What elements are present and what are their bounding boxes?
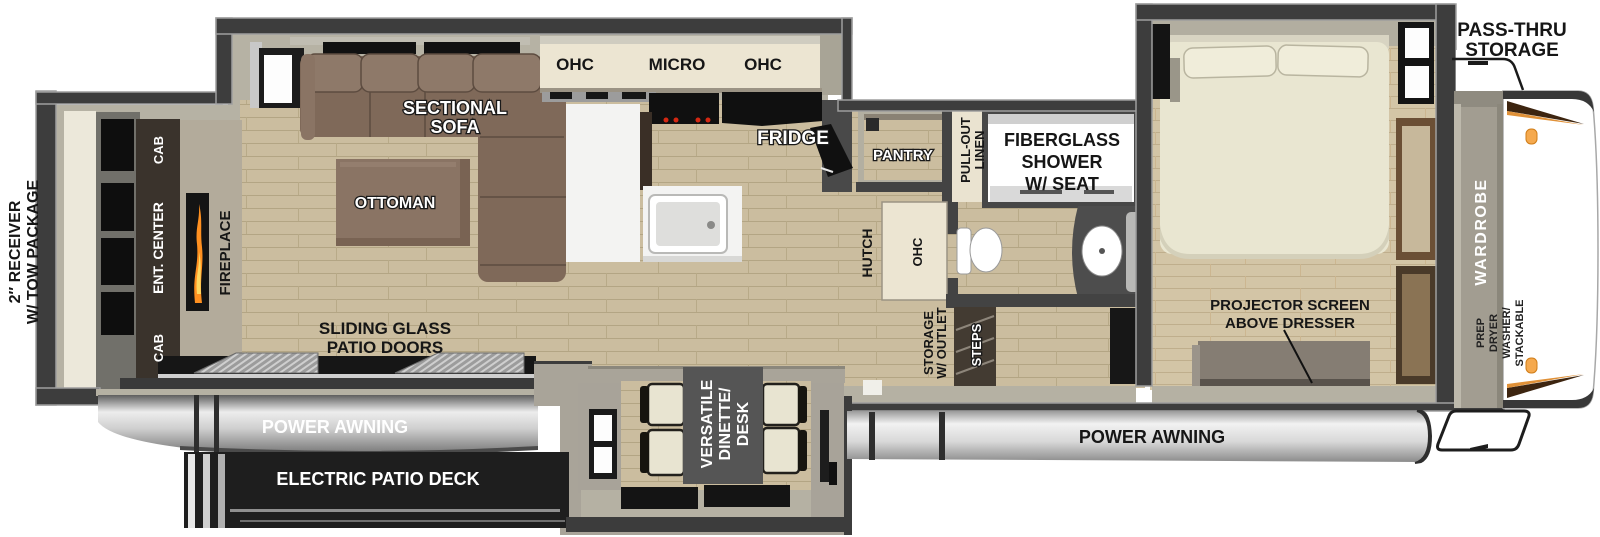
svg-text:FIREPLACE: FIREPLACE <box>217 210 234 295</box>
svg-text:OHC: OHC <box>744 55 782 74</box>
svg-text:OTTOMAN: OTTOMAN <box>355 195 436 212</box>
svg-text:ELECTRIC PATIO DECK: ELECTRIC PATIO DECK <box>276 469 479 489</box>
svg-text:STEPS: STEPS <box>969 323 984 366</box>
svg-text:PULL-OUT: PULL-OUT <box>958 117 973 183</box>
svg-text:PANTRY: PANTRY <box>873 147 933 164</box>
svg-text:W/ OUTLET: W/ OUTLET <box>934 307 949 379</box>
svg-text:STORAGE: STORAGE <box>1465 40 1559 61</box>
svg-text:OHC: OHC <box>556 55 594 74</box>
svg-text:WASHER/: WASHER/ <box>1501 307 1513 358</box>
svg-text:HUTCH: HUTCH <box>859 229 875 278</box>
svg-text:OHC: OHC <box>910 237 925 267</box>
svg-text:SOFA: SOFA <box>430 117 479 137</box>
svg-text:DINETTE/: DINETTE/ <box>717 387 734 460</box>
svg-text:WARDROBE: WARDROBE <box>1473 178 1490 285</box>
svg-text:FIBERGLASS: FIBERGLASS <box>1004 130 1120 150</box>
svg-text:PREP: PREP <box>1475 318 1487 348</box>
svg-text:2″ RECEIVER: 2″ RECEIVER <box>7 200 24 303</box>
svg-text:ENT. CENTER: ENT. CENTER <box>150 202 166 294</box>
svg-text:PROJECTOR SCREEN: PROJECTOR SCREEN <box>1210 297 1370 314</box>
svg-text:VERSATILE: VERSATILE <box>699 379 716 468</box>
svg-text:DESK: DESK <box>735 401 752 446</box>
svg-text:CAB: CAB <box>151 136 166 164</box>
svg-text:POWER AWNING: POWER AWNING <box>262 417 408 437</box>
svg-text:W/ SEAT: W/ SEAT <box>1025 174 1099 194</box>
svg-text:SECTIONAL: SECTIONAL <box>403 98 507 118</box>
svg-text:POWER AWNING: POWER AWNING <box>1079 427 1225 447</box>
svg-text:PATIO DOORS: PATIO DOORS <box>327 338 444 357</box>
svg-text:SLIDING GLASS: SLIDING GLASS <box>319 319 451 338</box>
svg-text:DRYER: DRYER <box>1488 314 1500 352</box>
svg-text:SHOWER: SHOWER <box>1022 152 1103 172</box>
svg-text:MICRO: MICRO <box>649 55 706 74</box>
svg-text:CAB: CAB <box>151 334 166 362</box>
svg-text:W/ TOW PACKAGE: W/ TOW PACKAGE <box>25 180 42 325</box>
svg-text:STACKABLE: STACKABLE <box>1514 299 1526 366</box>
svg-text:PASS-THRU: PASS-THRU <box>1457 20 1566 41</box>
svg-text:FRIDGE: FRIDGE <box>757 128 829 149</box>
svg-text:LINEN: LINEN <box>972 131 987 170</box>
svg-text:ABOVE DRESSER: ABOVE DRESSER <box>1225 315 1355 332</box>
